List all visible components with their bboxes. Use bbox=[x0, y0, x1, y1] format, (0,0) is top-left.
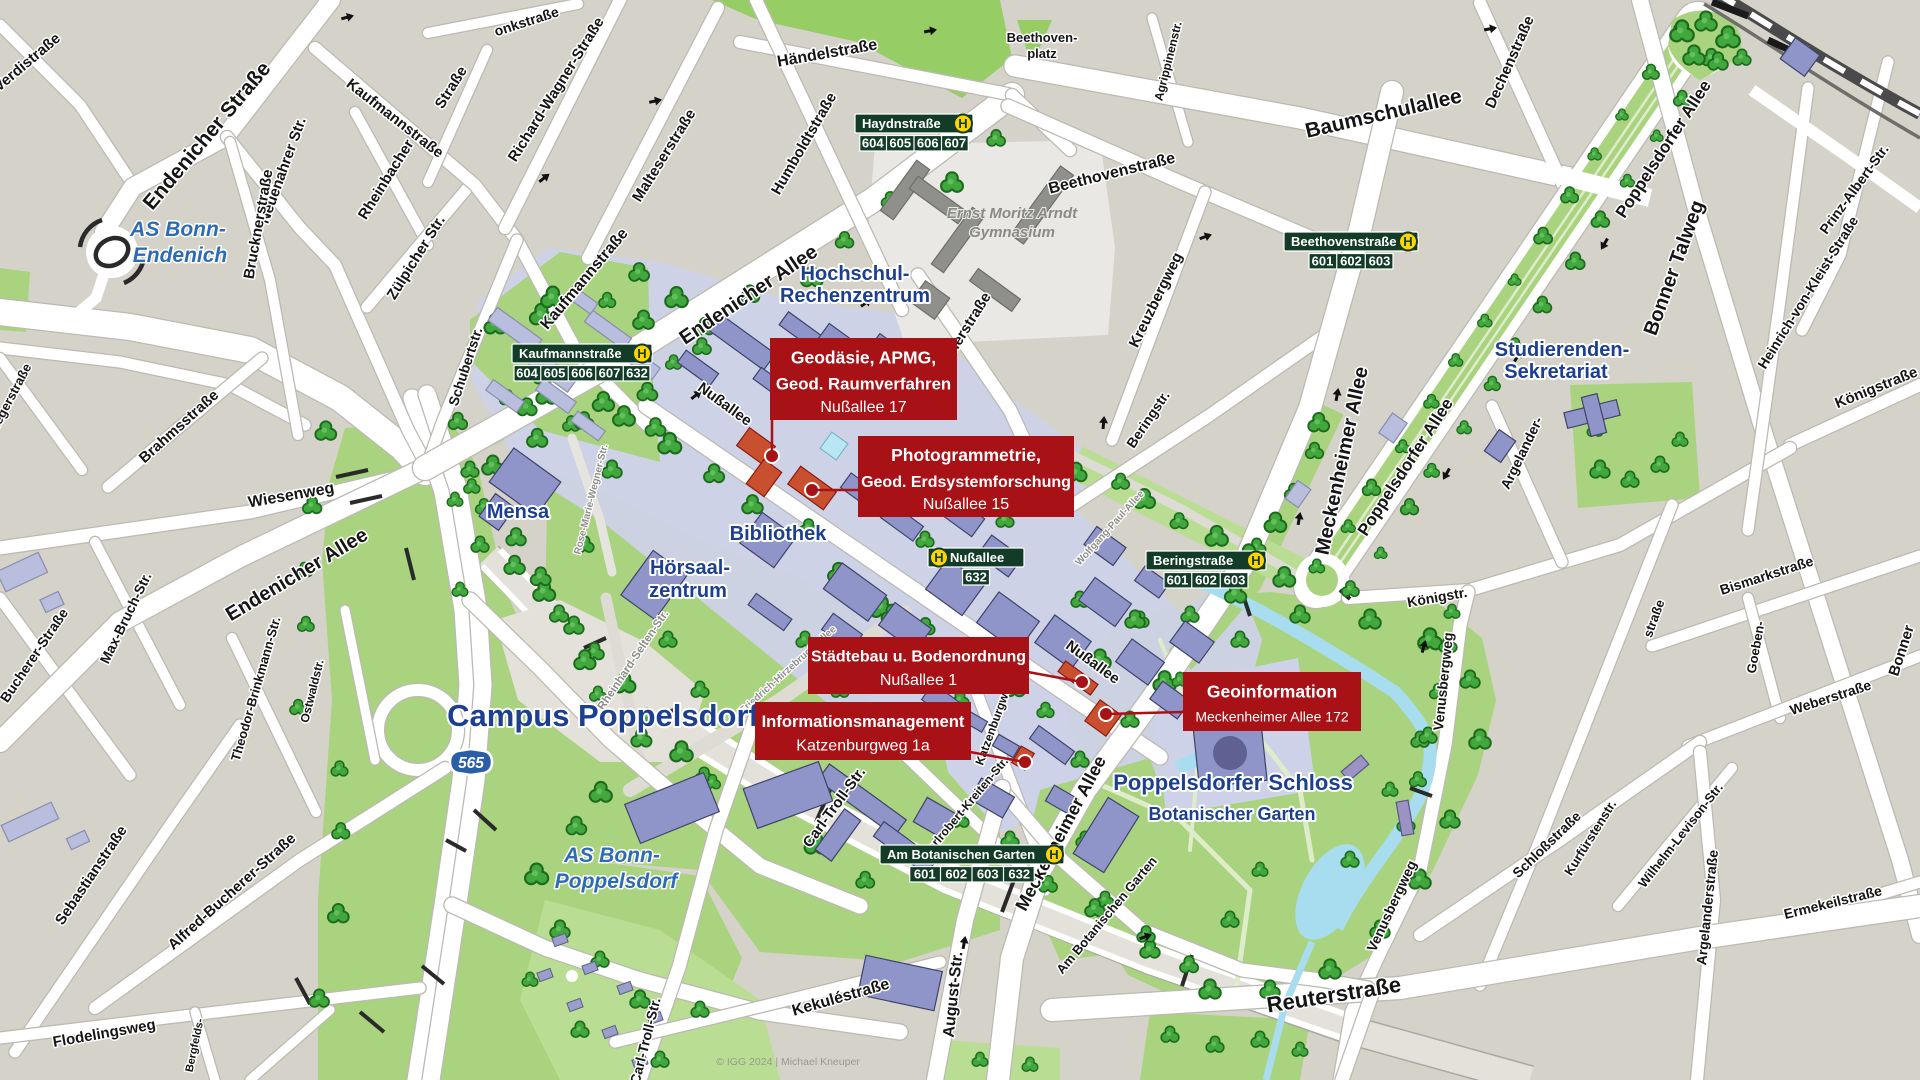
svg-text:Beethoven-: Beethoven- bbox=[1007, 30, 1078, 45]
svg-text:Nußallee 15: Nußallee 15 bbox=[923, 496, 1009, 513]
svg-text:Hörsaal-: Hörsaal- bbox=[650, 557, 730, 579]
svg-text:Photogrammetrie,: Photogrammetrie, bbox=[891, 445, 1041, 465]
svg-text:Geoinformation: Geoinformation bbox=[1207, 681, 1337, 701]
svg-text:platz: platz bbox=[1027, 46, 1057, 61]
svg-text:601: 601 bbox=[1312, 254, 1334, 269]
svg-text:Geod. Raumverfahren: Geod. Raumverfahren bbox=[776, 375, 951, 394]
svg-text:Poppelsdorfer Schloss: Poppelsdorfer Schloss bbox=[1113, 770, 1353, 795]
svg-text:603: 603 bbox=[977, 867, 999, 882]
svg-text:H: H bbox=[637, 346, 646, 361]
svg-text:606: 606 bbox=[917, 136, 939, 151]
svg-text:Am Botanischen Garten: Am Botanischen Garten bbox=[887, 847, 1035, 862]
svg-text:Mensa: Mensa bbox=[487, 501, 550, 523]
svg-text:602: 602 bbox=[945, 867, 967, 882]
svg-text:AS Bonn-: AS Bonn- bbox=[563, 844, 660, 867]
svg-text:Endenich: Endenich bbox=[133, 244, 228, 267]
svg-text:H: H bbox=[1251, 553, 1260, 568]
svg-text:Gymnasium: Gymnasium bbox=[969, 224, 1055, 241]
svg-text:© IGG 2024 | Michael Kneuper: © IGG 2024 | Michael Kneuper bbox=[716, 1056, 860, 1068]
svg-text:Bibliothek: Bibliothek bbox=[730, 523, 828, 545]
svg-text:Rechenzentrum: Rechenzentrum bbox=[780, 285, 930, 307]
svg-text:601: 601 bbox=[1167, 573, 1189, 588]
svg-text:604: 604 bbox=[862, 136, 884, 151]
svg-text:607: 607 bbox=[599, 366, 621, 381]
svg-text:H: H bbox=[1049, 847, 1058, 862]
svg-text:603: 603 bbox=[1369, 254, 1391, 269]
svg-text:Poppelsdorf: Poppelsdorf bbox=[555, 870, 680, 893]
svg-text:Meckenheimer Allee 172: Meckenheimer Allee 172 bbox=[1195, 709, 1349, 725]
svg-text:604: 604 bbox=[516, 366, 538, 381]
svg-text:632: 632 bbox=[965, 570, 987, 585]
svg-text:605: 605 bbox=[889, 136, 911, 151]
svg-text:Geodäsie, APMG,: Geodäsie, APMG, bbox=[791, 347, 936, 367]
svg-text:Informationsmanagement: Informationsmanagement bbox=[762, 712, 965, 731]
svg-text:Nußallee: Nußallee bbox=[950, 550, 1004, 565]
svg-text:Städtebau u. Bodenordnung: Städtebau u. Bodenordnung bbox=[811, 649, 1026, 666]
svg-text:632: 632 bbox=[1008, 867, 1030, 882]
svg-text:Nußallee 17: Nußallee 17 bbox=[820, 399, 906, 416]
svg-text:Beringstraße: Beringstraße bbox=[1153, 553, 1233, 568]
svg-text:632: 632 bbox=[626, 366, 648, 381]
svg-text:H: H bbox=[958, 116, 967, 131]
svg-text:Geod. Erdsystemforschung: Geod. Erdsystemforschung bbox=[861, 474, 1071, 491]
svg-text:H: H bbox=[934, 550, 943, 565]
svg-text:Ernst Moritz Arndt: Ernst Moritz Arndt bbox=[947, 205, 1078, 222]
svg-text:AS Bonn-: AS Bonn- bbox=[129, 218, 226, 241]
svg-text:Campus Poppelsdorf: Campus Poppelsdorf bbox=[447, 698, 759, 733]
svg-text:606: 606 bbox=[571, 366, 593, 381]
svg-text:Botanischer Garten: Botanischer Garten bbox=[1148, 804, 1315, 824]
svg-text:602: 602 bbox=[1340, 254, 1362, 269]
svg-text:603: 603 bbox=[1224, 573, 1246, 588]
svg-text:Beethovenstraße: Beethovenstraße bbox=[1291, 234, 1396, 249]
svg-text:H: H bbox=[1403, 234, 1412, 249]
svg-text:zentrum: zentrum bbox=[649, 580, 727, 602]
svg-text:Haydnstraße: Haydnstraße bbox=[862, 116, 941, 131]
svg-text:601: 601 bbox=[914, 867, 936, 882]
svg-text:565: 565 bbox=[458, 755, 484, 772]
svg-text:Studierenden-: Studierenden- bbox=[1495, 339, 1629, 361]
svg-text:605: 605 bbox=[544, 366, 566, 381]
svg-text:Kaufmannstraße: Kaufmannstraße bbox=[519, 346, 622, 361]
svg-text:607: 607 bbox=[944, 136, 966, 151]
svg-text:602: 602 bbox=[1195, 573, 1217, 588]
svg-text:Nußallee 1: Nußallee 1 bbox=[880, 672, 957, 689]
svg-text:Hochschul-: Hochschul- bbox=[801, 263, 910, 285]
svg-text:Sekretariat: Sekretariat bbox=[1504, 361, 1608, 383]
svg-text:Katzenburgweg 1a: Katzenburgweg 1a bbox=[796, 738, 930, 755]
